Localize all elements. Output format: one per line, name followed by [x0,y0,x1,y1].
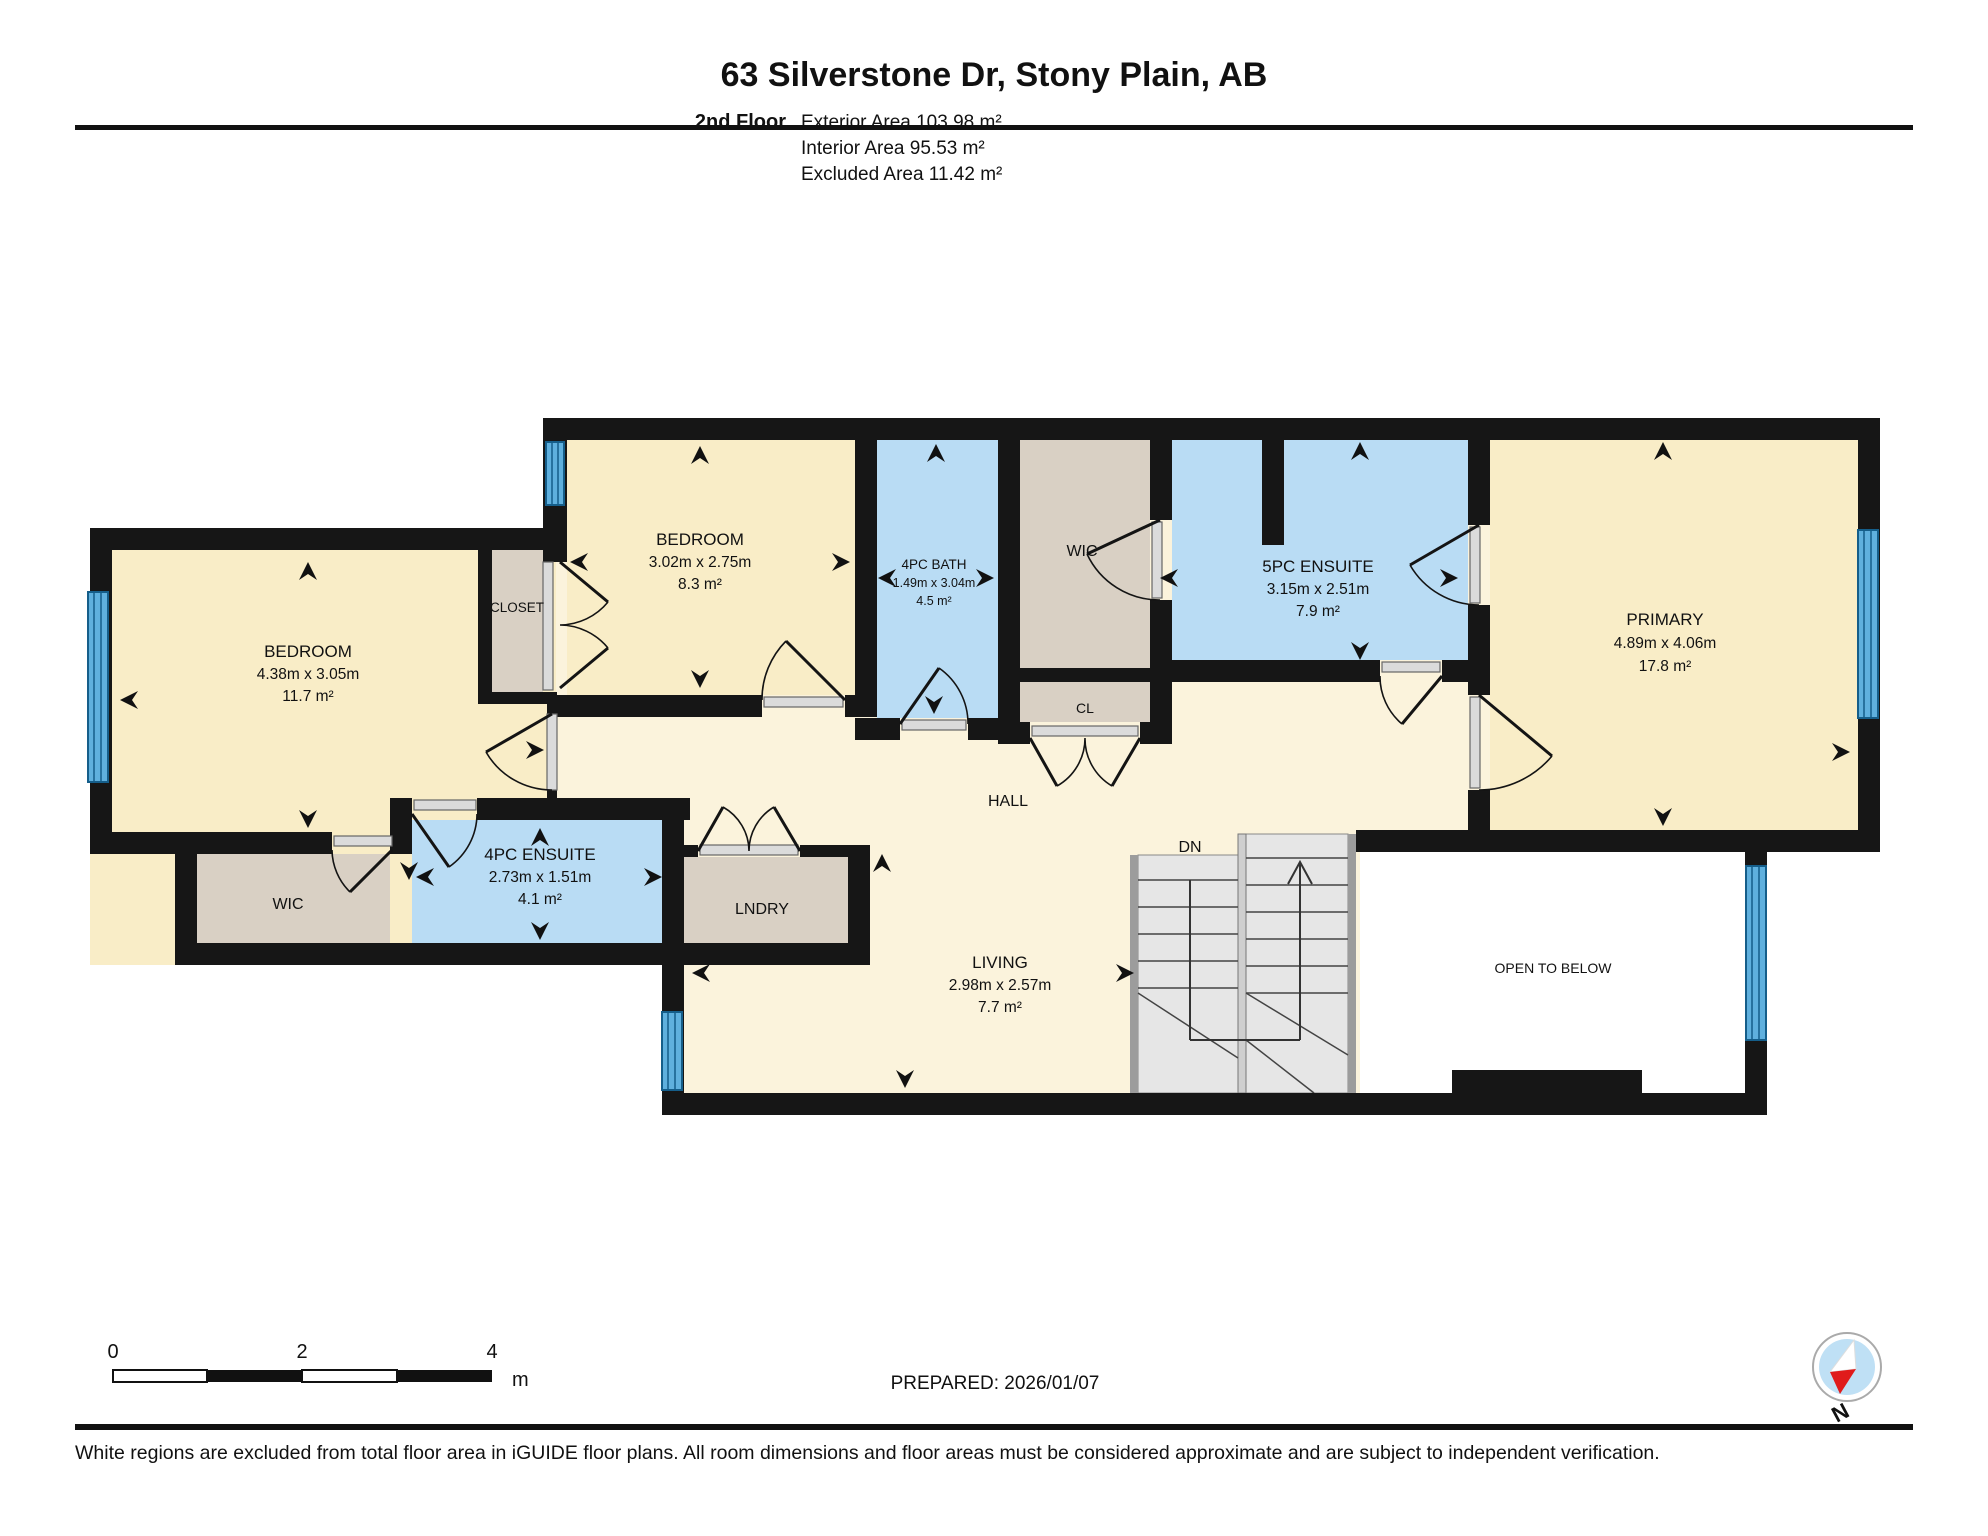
cl-label: CL [1076,700,1094,716]
closet-label: CLOSET [490,600,544,615]
fireplace-bump [1452,1070,1642,1100]
prepared-date: PREPARED: 2026/01/07 [891,1373,1100,1394]
footer-rule [75,1424,1913,1430]
lndry-label: LNDRY [735,901,789,918]
scale-bar: 0 2 4 m [107,1341,528,1391]
dn-label: DN [1178,839,1201,856]
bedroom-mid-area: 8.3 m² [678,576,722,593]
closet-fill [492,550,543,692]
hall-label: HALL [988,793,1028,810]
stair-flight-left [1138,855,1238,1093]
primary-area: 17.8 m² [1639,658,1692,675]
living-dims: 2.98m x 2.57m [949,977,1052,994]
footer: PREPARED: 2026/01/07 N White regions are… [75,1333,1913,1464]
bath-name: 4PC BATH [901,557,966,572]
ensuite4-name: 4PC ENSUITE [484,845,595,864]
wic-left-label: WIC [272,896,303,913]
excluded-area: Excluded Area 11.42 m² [801,164,1002,185]
interior-area: Interior Area 95.53 m² [801,138,985,159]
scale-tick-0: 0 [107,1341,118,1363]
ensuite4-area: 4.1 m² [518,891,562,908]
window-primary [1858,530,1878,718]
window-bedroom-left [88,592,108,782]
wic-mid-label: WIC [1066,543,1097,560]
floor-label: 2nd Floor [695,111,786,133]
window-bedroom-mid [546,442,564,505]
ensuite5-dims: 3.15m x 2.51m [1267,581,1370,598]
exterior-area: Exterior Area 103.98 m² [801,112,1002,133]
ensuite5-fill [1172,440,1468,660]
floor-plan-svg: 63 Silverstone Dr, Stony Plain, AB 2nd F… [0,0,1988,1536]
bedroom-mid-dims: 3.02m x 2.75m [649,554,752,571]
bath-area: 4.5 m² [916,594,951,608]
window-living [662,1012,682,1090]
bedroom-left-dims: 4.38m x 3.05m [257,666,360,683]
bedroom-mid-name: BEDROOM [656,530,744,549]
page-title: 63 Silverstone Dr, Stony Plain, AB [721,56,1268,94]
primary-name: PRIMARY [1626,610,1703,629]
bedroom-left-area: 11.7 m² [282,688,333,705]
living-name: LIVING [972,953,1028,972]
floor-plan-page: 63 Silverstone Dr, Stony Plain, AB 2nd F… [0,0,1988,1536]
compass-n-label: N [1827,1398,1853,1428]
living-area: 7.7 m² [978,999,1022,1016]
stair-flight-right [1246,834,1348,1093]
primary-dims: 4.89m x 4.06m [1614,635,1717,652]
scale-tick-4: 4 [486,1341,497,1363]
bedroom-left-name: BEDROOM [264,642,352,661]
stair-divider [1238,834,1246,1093]
stair-rail-right [1348,834,1356,1093]
scale-unit: m [512,1369,529,1391]
disclaimer-text: White regions are excluded from total fl… [75,1442,1660,1464]
compass-icon: N [1813,1333,1881,1427]
ensuite5-area: 7.9 m² [1296,603,1340,620]
header: 63 Silverstone Dr, Stony Plain, AB 2nd F… [75,56,1913,185]
ensuite5-name: 5PC ENSUITE [1262,557,1373,576]
open-to-below-label: OPEN TO BELOW [1495,960,1613,976]
window-open-to-below [1746,866,1766,1040]
ensuite4-dims: 2.73m x 1.51m [489,869,592,886]
scale-tick-2: 2 [296,1341,307,1363]
stairs [1130,834,1356,1093]
bath-dims: 1.49m x 3.04m [893,576,976,590]
